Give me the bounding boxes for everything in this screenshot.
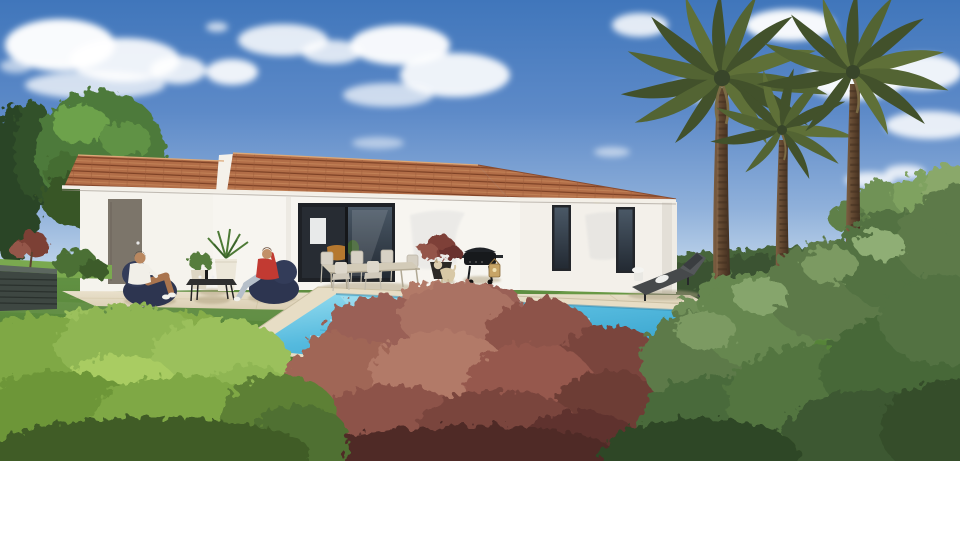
woman-head	[262, 249, 272, 259]
tall-window-1	[552, 205, 571, 271]
spa-cover-box	[0, 265, 57, 311]
man-head	[135, 253, 146, 264]
property-flyer: Véronique CHAUVET 06.28.31.67.99.	[0, 0, 960, 540]
caption-band: Véronique CHAUVET 06.28.31.67.99.	[0, 461, 960, 540]
house-render-photo	[0, 0, 960, 461]
tall-window-2	[616, 207, 635, 273]
door-handle	[136, 241, 139, 244]
fridge-behind-glass	[310, 218, 326, 244]
bottle	[205, 270, 208, 279]
